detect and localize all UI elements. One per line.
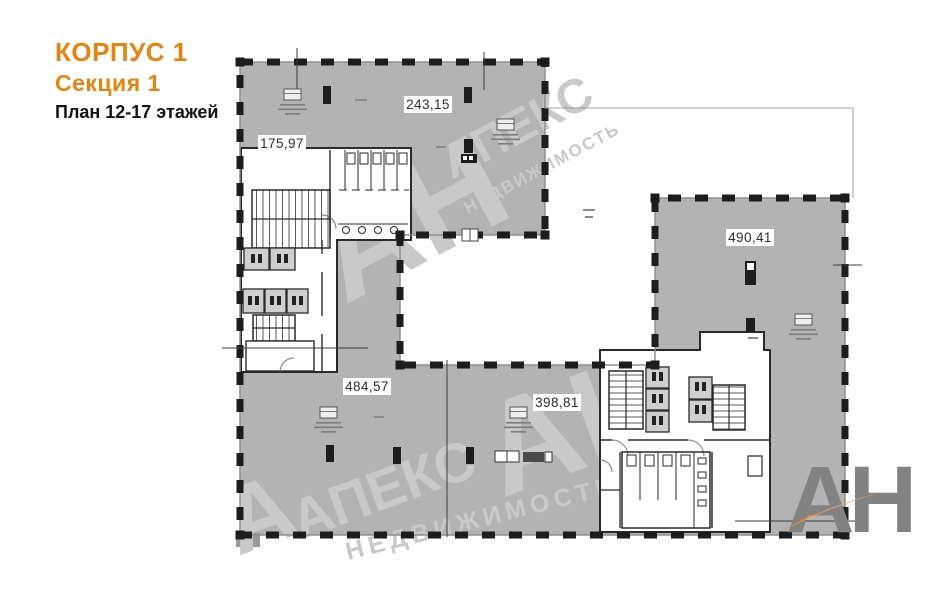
elevators-column-b bbox=[689, 377, 712, 422]
stair-lower bbox=[253, 315, 295, 341]
area-value: 484,57 bbox=[345, 379, 389, 394]
agency-logo: АН bbox=[782, 447, 912, 553]
stair-left bbox=[609, 371, 643, 429]
area-label-room-2: 243,15 bbox=[404, 96, 452, 113]
logo-monogram: АН bbox=[786, 447, 912, 553]
vestibule bbox=[246, 341, 314, 371]
courtyard-door bbox=[462, 229, 478, 241]
building-title: КОРПУС 1 bbox=[55, 38, 218, 67]
plan-title: План 12-17 этажей bbox=[55, 102, 218, 122]
area-value: 243,15 bbox=[406, 97, 450, 112]
area-label-room-3: 490,41 bbox=[726, 229, 774, 246]
stair-right bbox=[713, 385, 745, 430]
area-value: 490,41 bbox=[728, 230, 772, 245]
area-label-room-1: 175,97 bbox=[258, 135, 306, 152]
elevators-bank-b bbox=[243, 289, 308, 313]
section-title: Секция 1 bbox=[55, 71, 218, 97]
area-value: 175,97 bbox=[260, 136, 304, 151]
area-label-room-4: 484,57 bbox=[343, 378, 391, 395]
elevators-column-a bbox=[646, 367, 669, 432]
stair-upper bbox=[252, 190, 330, 248]
area-label-room-5: 398,81 bbox=[533, 394, 581, 411]
area-value: 398,81 bbox=[535, 395, 579, 410]
elevators-bank-a bbox=[244, 248, 295, 270]
title-block: КОРПУС 1 Секция 1 План 12-17 этажей bbox=[55, 38, 218, 122]
